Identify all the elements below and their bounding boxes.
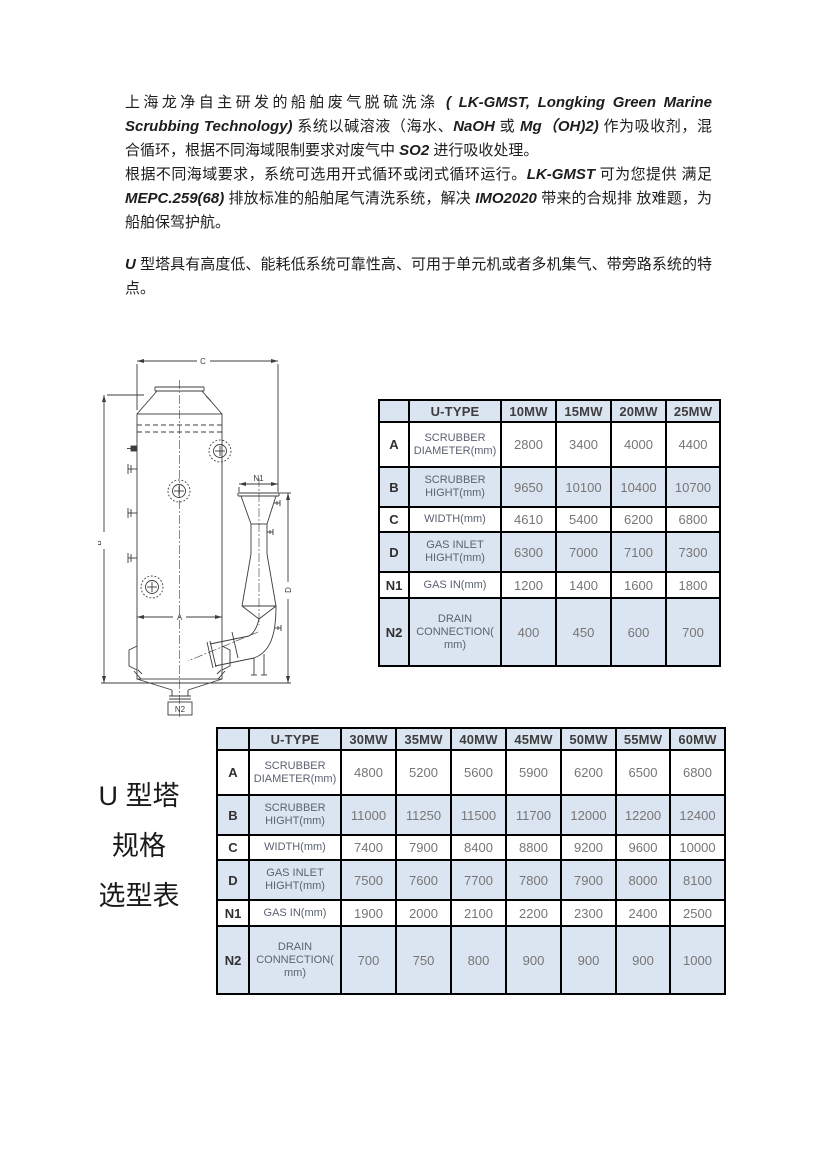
cell-value: 3400 (556, 422, 611, 467)
row-label: SCRUBBERHIGHT(mm) (409, 467, 501, 507)
table-row: N2DRAINCONNECTION(mm)7007508009009009001… (217, 926, 725, 994)
header-mw-cell: 35MW (396, 728, 451, 750)
table-row: DGAS INLETHIGHT(mm)6300700071007300 (379, 532, 720, 572)
row-key: N2 (217, 926, 249, 994)
cell-value: 7600 (396, 860, 451, 900)
cell-value: 8100 (670, 860, 725, 900)
cell-value: 7500 (341, 860, 396, 900)
cell-value: 9200 (561, 835, 616, 860)
cell-value: 9650 (501, 467, 556, 507)
row-key: A (379, 422, 409, 467)
intro-segment-cn: 系统以碱溶液（海水、 (293, 118, 454, 135)
header-mw-cell: 25MW (666, 400, 720, 422)
caption-line-2: 规格 (76, 821, 202, 871)
intro-segment-cn: 进行吸收处理。 (429, 142, 538, 159)
cell-value: 4400 (666, 422, 720, 467)
cell-value: 11250 (396, 795, 451, 835)
header-mw-cell: 15MW (556, 400, 611, 422)
cell-value: 2800 (501, 422, 556, 467)
row-label: GAS IN(mm) (409, 572, 501, 598)
cell-value: 7100 (611, 532, 666, 572)
row-label: SCRUBBERDIAMETER(mm) (249, 750, 341, 795)
table-row: CWIDTH(mm)4610540062006800 (379, 507, 720, 532)
cell-value: 12200 (616, 795, 670, 835)
intro-text: 上海龙净自主研发的船舶废气脱硫洗涤 ( LK-GMST, Longking Gr… (125, 91, 712, 301)
table-header-row: U-TYPE30MW35MW40MW45MW50MW55MW60MW (217, 728, 725, 750)
cell-value: 2300 (561, 900, 616, 926)
spec-table-30-60mw: U-TYPE30MW35MW40MW45MW50MW55MW60MWASCRUB… (216, 727, 726, 995)
cell-value: 1200 (501, 572, 556, 598)
cell-value: 750 (396, 926, 451, 994)
header-mw-cell: 20MW (611, 400, 666, 422)
cell-value: 4800 (341, 750, 396, 795)
header-mw-cell: 10MW (501, 400, 556, 422)
row-key: N1 (217, 900, 249, 926)
row-label: SCRUBBERDIAMETER(mm) (409, 422, 501, 467)
table-row: N1GAS IN(mm)1200140016001800 (379, 572, 720, 598)
cell-value: 2000 (396, 900, 451, 926)
header-utype-cell: U-TYPE (249, 728, 341, 750)
cell-value: 8400 (451, 835, 506, 860)
row-key: C (379, 507, 409, 532)
cell-value: 8800 (506, 835, 561, 860)
header-corner-cell (217, 728, 249, 750)
cell-value: 900 (616, 926, 670, 994)
cell-value: 1800 (666, 572, 720, 598)
cell-value: 11500 (451, 795, 506, 835)
table-row: N2DRAINCONNECTION(mm)400450600700 (379, 598, 720, 666)
row-key: D (379, 532, 409, 572)
header-mw-cell: 40MW (451, 728, 506, 750)
cell-value: 1400 (556, 572, 611, 598)
intro-segment-cn: 可为您提供 满足 (595, 166, 712, 183)
cell-value: 7300 (666, 532, 720, 572)
table-row: DGAS INLETHIGHT(mm)750076007700780079008… (217, 860, 725, 900)
intro-segment-cn: 上海龙净自主研发的船舶废气脱硫洗涤 (125, 94, 446, 111)
table-row: ASCRUBBERDIAMETER(mm)2800340040004400 (379, 422, 720, 467)
cell-value: 7800 (506, 860, 561, 900)
cell-value: 1000 (670, 926, 725, 994)
cell-value: 4610 (501, 507, 556, 532)
intro-paragraph-3: U 型塔具有高度低、能耗低系统可靠性高、可用于单元机或者多机集气、带旁路系统的特… (125, 253, 712, 301)
cell-value: 6800 (666, 507, 720, 532)
cell-value: 6200 (561, 750, 616, 795)
dimension-arrows (102, 359, 290, 683)
dimension-label-a: A (177, 613, 183, 622)
header-utype-cell: U-TYPE (409, 400, 501, 422)
cell-value: 5600 (451, 750, 506, 795)
header-mw-cell: 60MW (670, 728, 725, 750)
cell-value: 900 (506, 926, 561, 994)
intro-paragraph-2: 根据不同海域要求，系统可选用开式循环或闭式循环运行。LK-GMST 可为您提供 … (125, 163, 712, 235)
row-label: WIDTH(mm) (409, 507, 501, 532)
cell-value: 600 (611, 598, 666, 666)
manhole-lower-left (141, 576, 163, 598)
row-key: B (217, 795, 249, 835)
intro-segment-cn: 或 (495, 118, 520, 135)
header-mw-cell: 55MW (616, 728, 670, 750)
header-mw-cell: 45MW (506, 728, 561, 750)
caption-line-1: U 型塔 (76, 771, 202, 821)
header-mw-cell: 50MW (561, 728, 616, 750)
cell-value: 7900 (561, 860, 616, 900)
header-corner-cell (379, 400, 409, 422)
cell-value: 5400 (556, 507, 611, 532)
table-row: N1GAS IN(mm)1900200021002200230024002500 (217, 900, 725, 926)
dimension-label-c: C (200, 357, 206, 366)
row-label: DRAINCONNECTION(mm) (409, 598, 501, 666)
cell-value: 6200 (611, 507, 666, 532)
row-label: WIDTH(mm) (249, 835, 341, 860)
table-row: BSCRUBBERHIGHT(mm)9650101001040010700 (379, 467, 720, 507)
row-label: GAS IN(mm) (249, 900, 341, 926)
cell-value: 7000 (556, 532, 611, 572)
cell-value: 12400 (670, 795, 725, 835)
cell-value: 1600 (611, 572, 666, 598)
intro-segment-en: U (125, 256, 136, 273)
cell-value: 2500 (670, 900, 725, 926)
cell-value: 10400 (611, 467, 666, 507)
cell-value: 7700 (451, 860, 506, 900)
intro-paragraph-1: 上海龙净自主研发的船舶废气脱硫洗涤 ( LK-GMST, Longking Gr… (125, 91, 712, 163)
cell-value: 2200 (506, 900, 561, 926)
cell-value: 5200 (396, 750, 451, 795)
cell-value: 5900 (506, 750, 561, 795)
dimension-label-b: B (98, 540, 103, 545)
cell-value: 8000 (616, 860, 670, 900)
intro-segment-en: NaOH (453, 118, 495, 135)
left-nozzles (128, 464, 137, 563)
cell-value: 900 (561, 926, 616, 994)
table-row: CWIDTH(mm)74007900840088009200960010000 (217, 835, 725, 860)
cell-value: 6300 (501, 532, 556, 572)
cell-value: 9600 (616, 835, 670, 860)
table-header-row: U-TYPE10MW15MW20MW25MW (379, 400, 720, 422)
table-caption: U 型塔 规格 选型表 (76, 771, 202, 921)
row-key: D (217, 860, 249, 900)
cell-value: 4000 (611, 422, 666, 467)
table-row: ASCRUBBERDIAMETER(mm)4800520056005900620… (217, 750, 725, 795)
intro-segment-cn: 型塔具有高度低、能耗低系统可靠性高、可用于单元机或者多机集气、带旁路系统的特点。 (125, 256, 712, 297)
cell-value: 12000 (561, 795, 616, 835)
cell-value: 7900 (396, 835, 451, 860)
row-key: N1 (379, 572, 409, 598)
cell-value: 400 (501, 598, 556, 666)
row-label: GAS INLETHIGHT(mm) (409, 532, 501, 572)
row-key: A (217, 750, 249, 795)
cell-value: 10100 (556, 467, 611, 507)
dimension-label-n2: N2 (175, 705, 186, 714)
manhole-middle (168, 480, 190, 502)
dimension-label-n1: N1 (253, 474, 264, 483)
intro-segment-en: MEPC.259(68) (125, 190, 224, 207)
cell-value: 2100 (451, 900, 506, 926)
cell-value: 10000 (670, 835, 725, 860)
table-row: BSCRUBBERHIGHT(mm)1100011250115001170012… (217, 795, 725, 835)
spec-table-10-25mw: U-TYPE10MW15MW20MW25MWASCRUBBERDIAMETER(… (378, 399, 721, 667)
manhole-upper-right (209, 440, 231, 462)
cell-value: 2400 (616, 900, 670, 926)
intro-segment-en: Mg（OH)2) (520, 118, 599, 135)
row-label: SCRUBBERHIGHT(mm) (249, 795, 341, 835)
cell-value: 6500 (616, 750, 670, 795)
row-label: GAS INLETHIGHT(mm) (249, 860, 341, 900)
caption-line-3: 选型表 (76, 871, 202, 921)
row-label: DRAINCONNECTION(mm) (249, 926, 341, 994)
row-key: N2 (379, 598, 409, 666)
cell-value: 7400 (341, 835, 396, 860)
cell-value: 10700 (666, 467, 720, 507)
intro-segment-en: SO2 (399, 142, 429, 159)
intro-segment-cn: 根据不同海域要求，系统可选用开式循环或闭式循环运行。 (125, 166, 527, 183)
cell-value: 700 (341, 926, 396, 994)
cell-value: 6800 (670, 750, 725, 795)
row-key: C (217, 835, 249, 860)
header-mw-cell: 30MW (341, 728, 396, 750)
row-key: B (379, 467, 409, 507)
cell-value: 450 (556, 598, 611, 666)
intro-segment-en: LK-GMST (527, 166, 595, 183)
cell-value: 700 (666, 598, 720, 666)
cell-value: 1900 (341, 900, 396, 926)
cell-value: 11000 (341, 795, 396, 835)
intro-segment-cn: 排放标准的船舶尾气清洗系统，解决 (224, 190, 475, 207)
dimension-label-d: D (284, 587, 293, 593)
intro-segment-en: IMO2020 (475, 190, 537, 207)
cell-value: 800 (451, 926, 506, 994)
scrubber-drawing: C B A D N1 N2 (98, 340, 328, 720)
document-page: 上海龙净自主研发的船舶废气脱硫洗涤 ( LK-GMST, Longking Gr… (0, 0, 830, 1174)
cell-value: 11700 (506, 795, 561, 835)
